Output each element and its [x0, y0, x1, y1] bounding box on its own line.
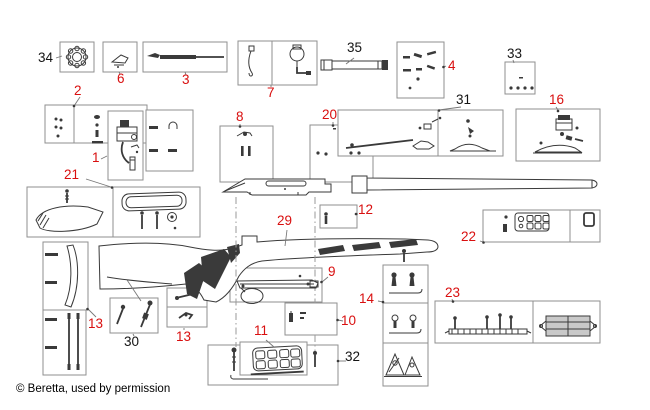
part-label-33: 33: [507, 47, 522, 61]
part-label-9: 9: [328, 265, 336, 279]
part-label-3: 3: [182, 73, 190, 87]
box-12-part-drawing: [324, 212, 328, 224]
parts-diagram: 34 6 3 7 35 4 33 2 1 8 20 31 16 21 12 22…: [0, 0, 650, 410]
barrel-drawing: [352, 176, 597, 193]
part-label-30: 30: [124, 335, 139, 349]
box-7: [238, 41, 317, 85]
part-label-32: 32: [345, 350, 360, 364]
part-label-20: 20: [322, 108, 337, 122]
part-label-16: 16: [549, 93, 564, 107]
part-label-22: 22: [461, 230, 476, 244]
part-label-8: 8: [236, 110, 244, 124]
part-label-14: 14: [359, 292, 374, 306]
part-label-23: 23: [445, 286, 460, 300]
part-label-2: 2: [74, 84, 82, 98]
part-label-31: 31: [456, 93, 471, 107]
part-label-12: 12: [358, 203, 373, 217]
part-label-7: 7: [267, 86, 275, 100]
sling-stud: [402, 249, 406, 253]
part-label-21: 21: [64, 168, 79, 182]
tube-35-drawing: [321, 60, 388, 70]
part-label-13-right: 13: [176, 330, 191, 344]
part-label-35: 35: [347, 41, 362, 55]
box-13-upper: [43, 242, 88, 310]
diagram-art: [0, 0, 650, 410]
box-6: [103, 42, 137, 72]
box-14: [383, 265, 428, 386]
part-label-13-left: 13: [88, 317, 103, 331]
part-label-4: 4: [448, 59, 456, 73]
part-label-29: 29: [277, 214, 292, 228]
box-2-right: [146, 110, 193, 171]
part-label-11: 11: [254, 324, 268, 338]
part-label-1: 1: [92, 151, 100, 165]
part-label-6: 6: [117, 72, 125, 86]
copyright-caption: © Beretta, used by permission: [16, 383, 170, 395]
part-label-34: 34: [38, 51, 53, 65]
roll-part-drawing: [540, 316, 597, 336]
part-label-10: 10: [341, 314, 356, 328]
